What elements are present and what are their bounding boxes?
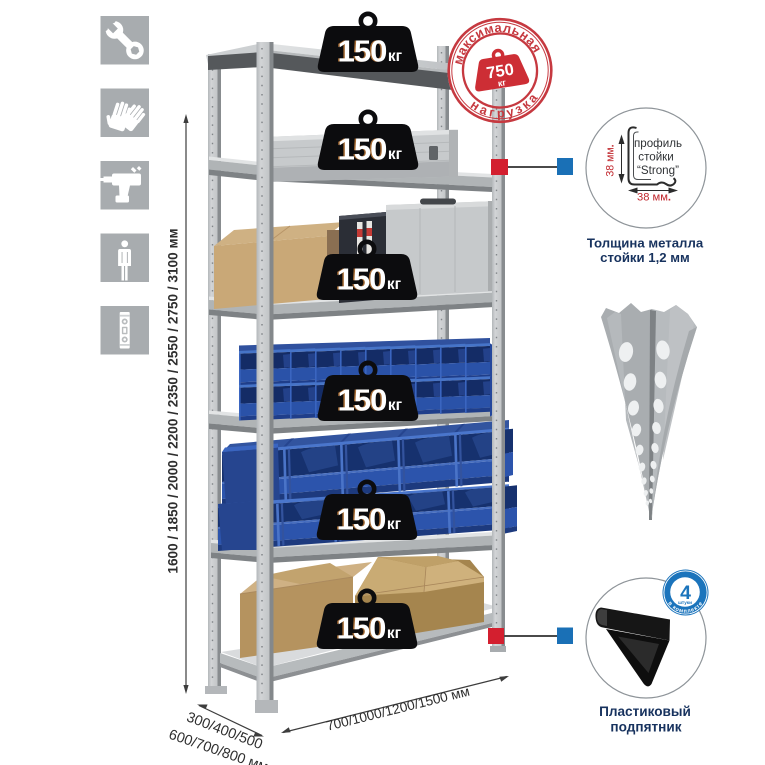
svg-text:1600 / 1850 / 2000 / 2200 / 23: 1600 / 1850 / 2000 / 2200 / 2350 / 2550 … [166,228,181,573]
svg-text:38 мм.: 38 мм. [605,144,617,176]
svg-text:38 мм.: 38 мм. [637,192,671,204]
svg-text:профиль: профиль [634,137,682,150]
svg-text:стойки: стойки [638,151,673,164]
svg-text:стойки 1,2 мм: стойки 1,2 мм [600,250,690,265]
svg-text:“Strong”: “Strong” [637,164,679,177]
svg-text:Толщина металла: Толщина металла [587,236,704,251]
svg-text:Пластиковый: Пластиковый [599,704,691,719]
svg-text:подпятник: подпятник [610,720,681,735]
svg-text:штуки: штуки [678,600,692,605]
